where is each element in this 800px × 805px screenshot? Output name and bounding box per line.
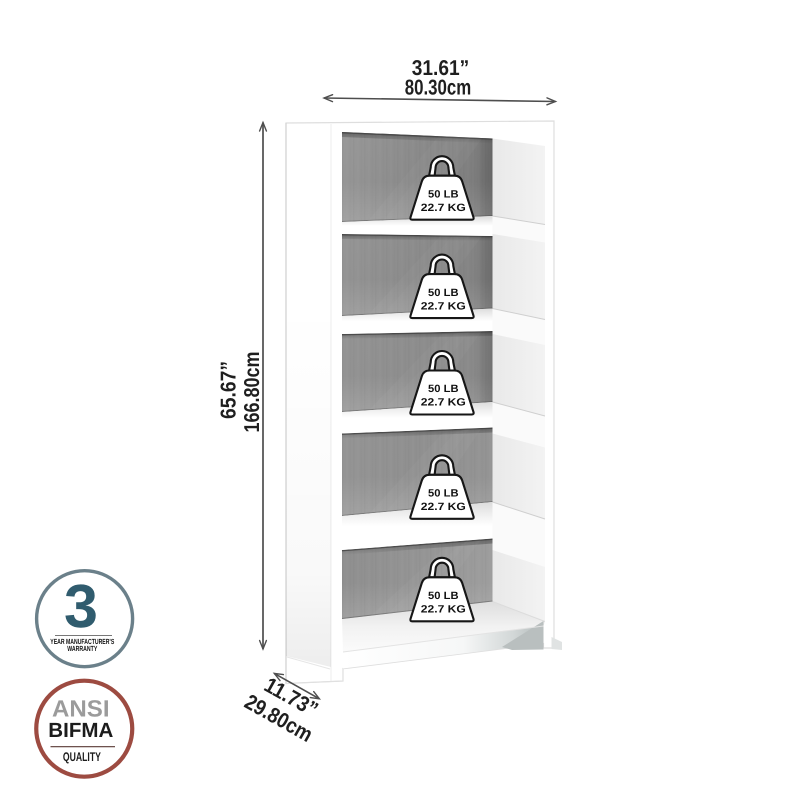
svg-text:80.30cm: 80.30cm	[405, 76, 472, 100]
svg-text:50 LB: 50 LB	[428, 590, 459, 602]
svg-text:22.7 KG: 22.7 KG	[421, 202, 466, 214]
svg-text:65.67”: 65.67”	[217, 361, 241, 419]
svg-text:WARRANTY: WARRANTY	[67, 644, 97, 653]
svg-text:QUALITY: QUALITY	[63, 750, 101, 764]
svg-text:22.7 KG: 22.7 KG	[421, 397, 466, 409]
svg-text:3: 3	[64, 572, 98, 640]
svg-text:50 LB: 50 LB	[428, 383, 459, 395]
svg-text:BIFMA: BIFMA	[48, 719, 113, 742]
svg-text:50 LB: 50 LB	[428, 287, 459, 299]
svg-text:166.80cm: 166.80cm	[240, 352, 264, 433]
svg-text:50 LB: 50 LB	[428, 188, 459, 200]
svg-text:22.7 KG: 22.7 KG	[421, 604, 466, 616]
svg-text:ANSI: ANSI	[52, 696, 110, 722]
svg-text:22.7 KG: 22.7 KG	[421, 501, 466, 513]
svg-text:50 LB: 50 LB	[428, 488, 459, 500]
svg-text:22.7 KG: 22.7 KG	[421, 300, 466, 312]
